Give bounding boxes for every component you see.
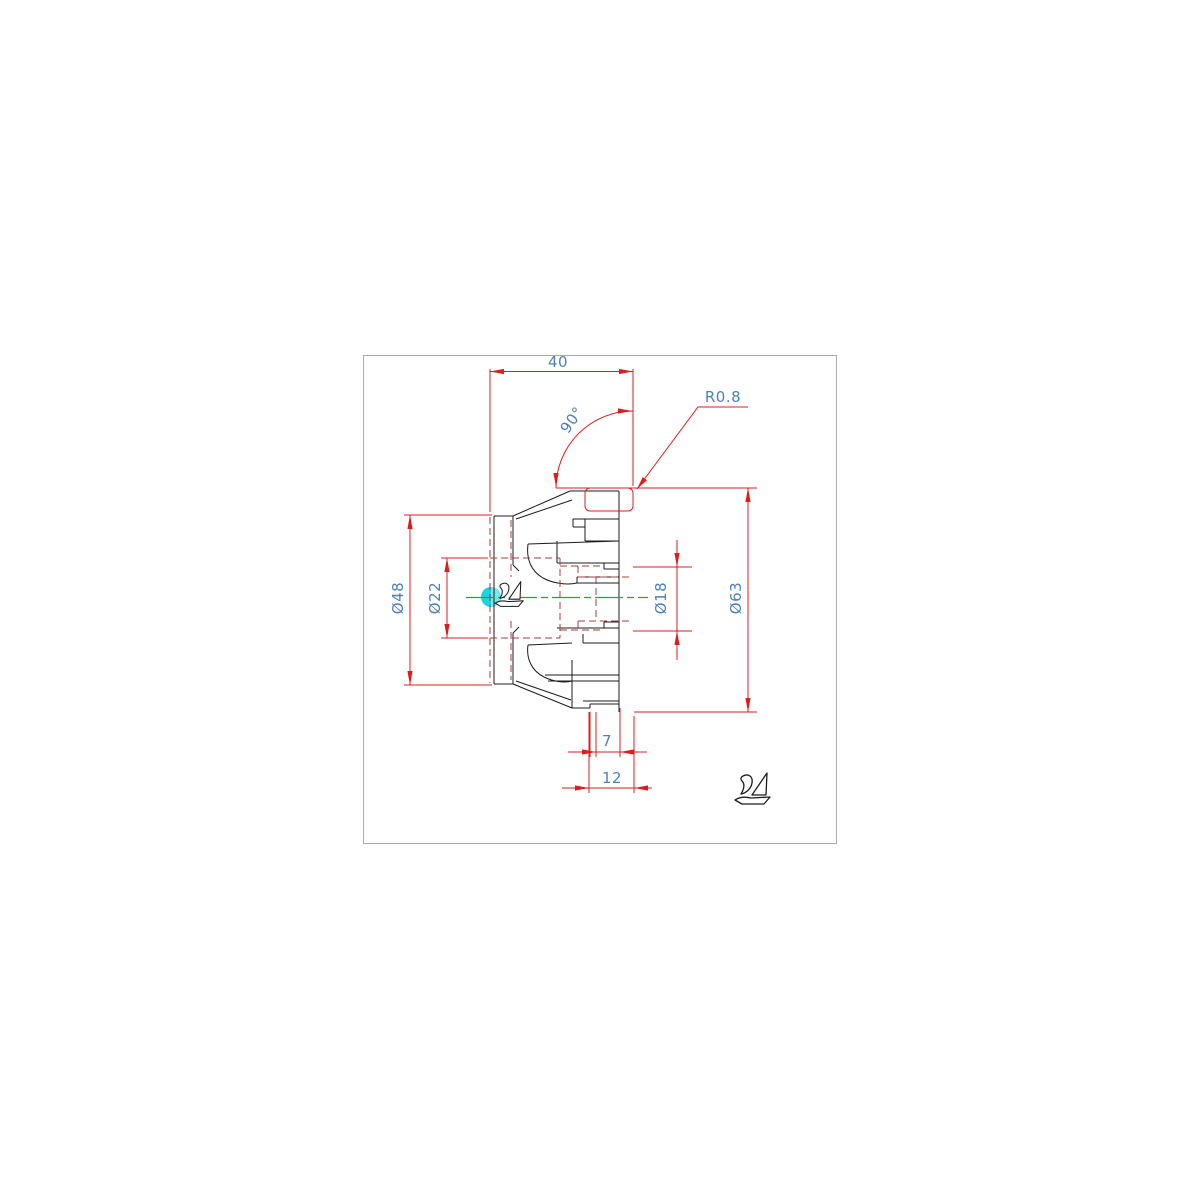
dimension-label-front-diameter: Ø48 (389, 582, 407, 614)
dimension-label-overall-width: 40 (548, 353, 568, 371)
cad-viewport: 40 90° R0.8 Ø63 Ø48 (0, 0, 1200, 1200)
dimension-label-bore-diameter: Ø18 (652, 582, 670, 614)
cad-canvas[interactable]: 40 90° R0.8 Ø63 Ø48 (0, 0, 1200, 1200)
dimension-label-corner-radius: R0.8 (705, 388, 741, 406)
dimension-label-outer-diameter: Ø63 (727, 582, 745, 614)
dimension-label-hub-length: 12 (602, 769, 622, 787)
dimension-label-spigot-length: 7 (602, 732, 612, 750)
dimension-label-counterbore-diameter: Ø22 (426, 582, 444, 614)
